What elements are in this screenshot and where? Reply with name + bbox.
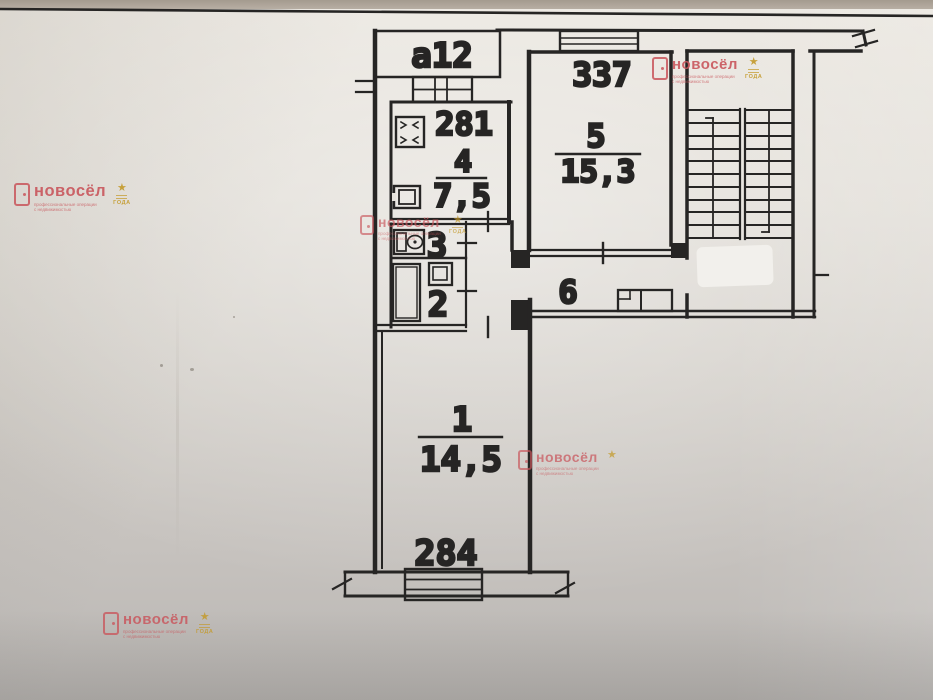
floor-plan-drawing: a12 281 4 7,5 xyxy=(0,0,933,700)
bathroom-number: 2 xyxy=(428,285,448,325)
form-border-line xyxy=(0,9,933,16)
kitchen-sink-icon xyxy=(392,186,420,208)
room1-number: 1 xyxy=(452,400,472,440)
house-logo-icon xyxy=(103,612,119,635)
wall-pillar xyxy=(511,300,530,330)
kitchen-area: 7,5 xyxy=(433,177,491,215)
award-emblem: ★ ГОДА xyxy=(113,183,131,207)
bath-sink-icon xyxy=(429,263,452,285)
house-logo-icon xyxy=(360,215,374,235)
wall-pillar xyxy=(511,250,530,268)
watermark-novosel: новосёл профессиональные операции с недв… xyxy=(652,57,762,84)
watermark-novosel: новосёл профессиональные операции с недв… xyxy=(103,612,213,639)
award-emblem: ★ ГОДА xyxy=(745,57,763,81)
house-logo-icon xyxy=(14,183,30,206)
star-icon: ★ xyxy=(453,215,463,225)
star-icon: ★ xyxy=(749,57,759,67)
wall-tick xyxy=(333,579,351,589)
bathtub-icon xyxy=(393,264,420,321)
house-logo-icon xyxy=(652,57,668,80)
award-label: ГОДА xyxy=(745,75,763,81)
watermark-tagline: профессиональные операции с недвижимость… xyxy=(672,74,736,84)
watermark-brand: новосёл xyxy=(123,612,189,627)
house-logo-icon xyxy=(518,450,532,470)
balcony: a12 xyxy=(375,31,500,102)
watermark-novosel: новосёл профессиональные операции с недв… xyxy=(518,450,617,476)
balcony-label: a12 xyxy=(411,36,472,76)
award-emblem: ★ ГОДА xyxy=(196,612,214,636)
stamp-kitchen: 281 xyxy=(435,105,493,143)
built-in-closet xyxy=(618,290,672,311)
watermark-brand: новосёл xyxy=(34,183,106,200)
kitchen-number: 4 xyxy=(454,145,472,180)
stove-icon xyxy=(396,117,424,147)
star-icon: ★ xyxy=(607,450,617,460)
living-area: 15,3 xyxy=(561,154,636,190)
watermark-novosel: новосёл профессиональные операции с недв… xyxy=(360,215,467,241)
correction-fluid-patch xyxy=(696,245,773,288)
watermark-tagline: профессиональные операции с недвижимость… xyxy=(34,202,98,212)
award-label: ГОДА xyxy=(449,230,467,236)
watermark-novosel: новосёл профессиональные операции с недв… xyxy=(14,183,131,212)
watermark-tagline: профессиональные операции с недвижимость… xyxy=(123,629,187,639)
living-number: 5 xyxy=(586,117,605,155)
award-emblem: ★ xyxy=(607,450,617,460)
star-icon: ★ xyxy=(200,612,210,622)
watermark-brand: новосёл xyxy=(672,57,738,72)
stamp-living: 337 xyxy=(572,55,632,94)
room1-area: 14,5 xyxy=(420,440,502,480)
room1-bottom-wall xyxy=(333,572,574,596)
living-window xyxy=(560,31,638,51)
award-label: ГОДА xyxy=(196,630,214,636)
wall-tick xyxy=(556,583,574,593)
award-emblem: ★ ГОДА xyxy=(449,215,467,236)
award-label: ГОДА xyxy=(113,201,131,207)
watermark-brand: новосёл xyxy=(378,215,442,229)
star-icon: ★ xyxy=(117,183,127,193)
hallway-number: 6 xyxy=(558,273,577,311)
staircase xyxy=(687,51,793,317)
watermark-brand: новосёл xyxy=(536,450,600,464)
watermark-tagline: профессиональные операции с недвижимость… xyxy=(536,466,600,476)
kitchen: 281 4 7,5 xyxy=(391,102,511,231)
watermark-tagline: профессиональные операции с недвижимость… xyxy=(378,231,442,241)
